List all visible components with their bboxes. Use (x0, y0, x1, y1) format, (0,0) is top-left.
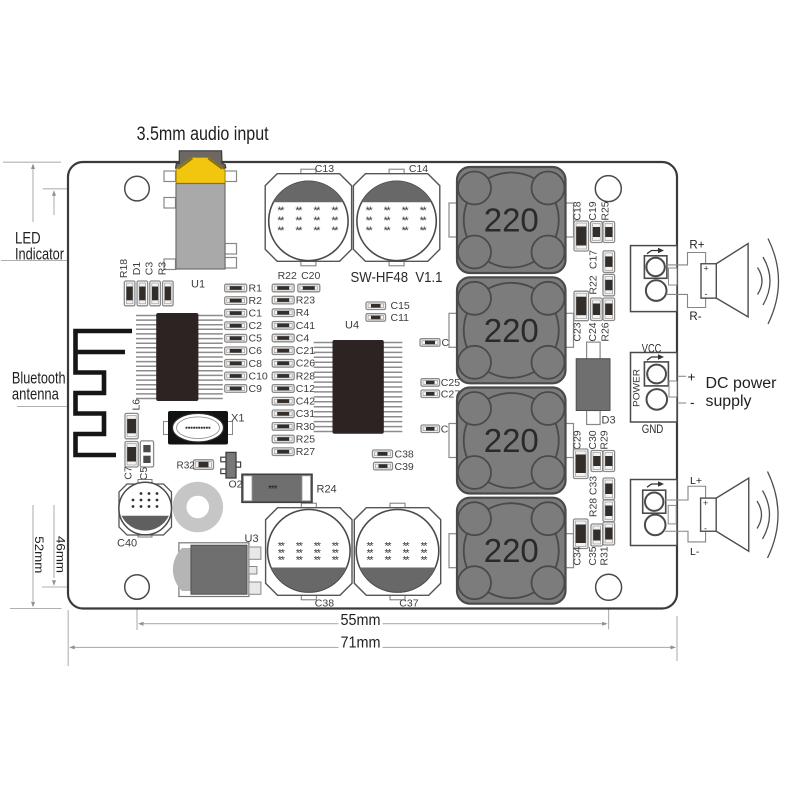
svg-text:C10: C10 (249, 370, 268, 382)
svg-text:R30: R30 (296, 421, 315, 433)
svg-text:U1: U1 (191, 279, 205, 291)
svg-text:C24: C24 (587, 322, 599, 341)
svg-text:C8: C8 (249, 358, 263, 370)
svg-text:C29: C29 (572, 430, 584, 449)
svg-text:220: 220 (484, 532, 539, 569)
svg-text:52mm: 52mm (32, 536, 45, 573)
svg-text:R2: R2 (249, 295, 263, 307)
svg-text:71mm: 71mm (341, 634, 381, 651)
svg-text:C7: C7 (123, 466, 135, 480)
svg-text:C15: C15 (391, 300, 410, 312)
svg-text:C20: C20 (301, 270, 320, 282)
svg-text:C5: C5 (138, 467, 150, 481)
svg-text:C18: C18 (572, 201, 584, 220)
svg-text:C26: C26 (296, 358, 315, 370)
svg-text:C38: C38 (395, 449, 414, 461)
svg-text:R4: R4 (296, 307, 310, 319)
svg-text:R28: R28 (588, 498, 600, 517)
svg-text:R1: R1 (249, 282, 263, 294)
svg-text:R24: R24 (317, 484, 337, 496)
svg-text:C12: C12 (296, 383, 315, 395)
svg-text:GND: GND (642, 424, 664, 436)
svg-text:C35: C35 (587, 546, 599, 565)
svg-text:C38: C38 (315, 598, 334, 610)
svg-text:R22: R22 (587, 275, 599, 294)
svg-text:L-: L- (690, 546, 700, 558)
svg-text:C11: C11 (391, 312, 410, 324)
svg-text:C21: C21 (296, 345, 315, 357)
svg-text:+: + (688, 369, 696, 384)
svg-text:R18: R18 (118, 259, 130, 278)
svg-text:R27: R27 (296, 446, 315, 458)
svg-text:C30: C30 (587, 430, 599, 449)
svg-text:antenna: antenna (12, 384, 59, 403)
svg-text:R29: R29 (599, 430, 611, 449)
svg-text:C6: C6 (249, 345, 263, 357)
svg-text:C13: C13 (315, 163, 334, 175)
svg-text:C17: C17 (587, 250, 599, 269)
svg-text:R25: R25 (600, 201, 612, 220)
svg-text:220: 220 (484, 422, 539, 459)
svg-text:R3: R3 (156, 262, 168, 276)
svg-text:C9: C9 (249, 383, 263, 395)
svg-text:R22: R22 (278, 270, 297, 282)
svg-text:C34: C34 (572, 546, 584, 565)
svg-text:C1: C1 (249, 308, 263, 320)
svg-text:C23: C23 (572, 322, 584, 341)
svg-text:supply: supply (706, 393, 752, 410)
svg-text:R-: R- (689, 311, 701, 323)
svg-text:D1: D1 (131, 262, 143, 276)
svg-text:+: + (703, 498, 708, 508)
svg-text:220: 220 (484, 312, 539, 349)
svg-text:C4: C4 (296, 332, 310, 344)
svg-text:C5: C5 (249, 333, 263, 345)
svg-text:-: - (705, 289, 708, 299)
svg-text:C31: C31 (296, 408, 315, 420)
svg-text:C19: C19 (587, 201, 599, 220)
svg-text:R32: R32 (177, 461, 196, 472)
svg-text:L+: L+ (690, 475, 702, 487)
svg-text:R26: R26 (600, 322, 612, 341)
svg-text:C33: C33 (588, 476, 600, 495)
svg-text:C3: C3 (144, 262, 156, 276)
svg-text:C14: C14 (409, 163, 428, 175)
svg-text:+: + (704, 264, 709, 274)
svg-text:-: - (704, 524, 707, 534)
svg-text:POWER: POWER (632, 368, 642, 407)
svg-text:R25: R25 (296, 433, 315, 445)
svg-text:C39: C39 (395, 461, 414, 473)
svg-text:L6: L6 (131, 399, 143, 411)
svg-text:C2: C2 (249, 320, 263, 332)
svg-text:R+: R+ (689, 240, 704, 252)
svg-text:U3: U3 (245, 533, 259, 545)
svg-text:O2: O2 (229, 479, 243, 491)
svg-text:46mm: 46mm (54, 536, 67, 573)
svg-text:SW-HF48 V1.1: SW-HF48 V1.1 (351, 270, 443, 286)
svg-text:R28: R28 (296, 370, 315, 382)
svg-text:D3: D3 (602, 415, 616, 427)
svg-text:C42: C42 (296, 396, 315, 408)
svg-text:R31: R31 (599, 546, 611, 565)
svg-text:C37: C37 (399, 598, 418, 610)
svg-text:X1: X1 (231, 413, 244, 425)
svg-text:55mm: 55mm (341, 612, 381, 629)
svg-text:3.5mm audio input: 3.5mm audio input (137, 124, 270, 145)
svg-text:C40: C40 (117, 538, 137, 550)
svg-text:VCC: VCC (642, 344, 662, 356)
svg-text:C41: C41 (296, 320, 315, 332)
svg-text:C25: C25 (441, 377, 460, 389)
svg-text:R23: R23 (296, 295, 315, 307)
svg-text:-: - (690, 395, 695, 410)
svg-text:DC power: DC power (706, 375, 777, 392)
svg-text:U4: U4 (345, 320, 359, 332)
svg-text:***: *** (268, 484, 278, 495)
svg-text:220: 220 (484, 202, 539, 239)
